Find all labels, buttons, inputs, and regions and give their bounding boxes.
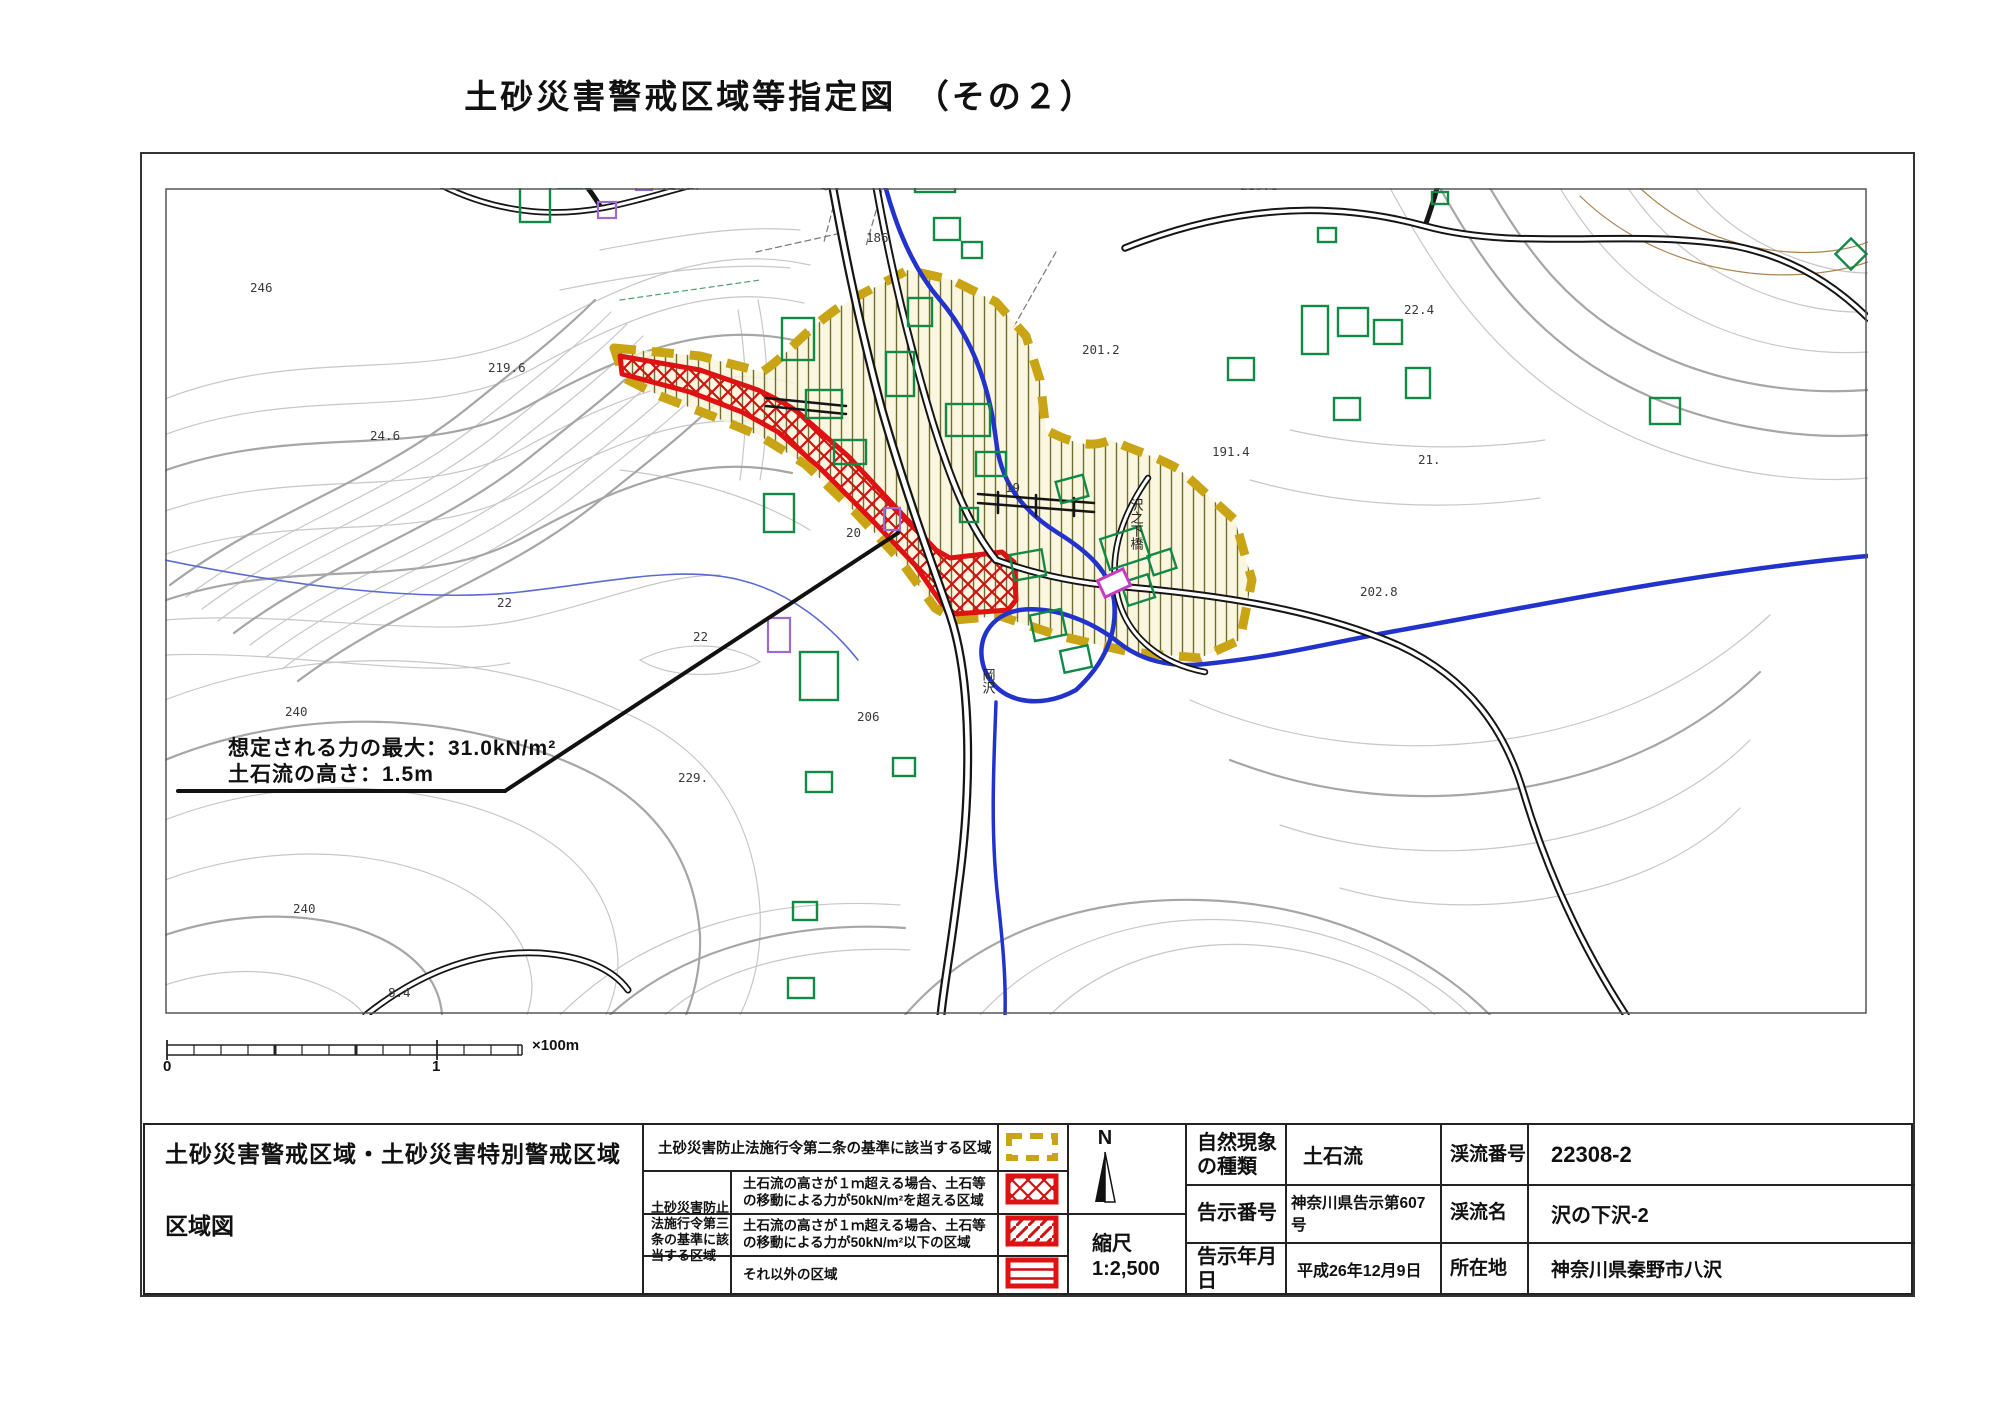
map-elevation-label: 8.4 bbox=[388, 985, 411, 1000]
map-elevation-label: 206 bbox=[857, 709, 880, 724]
info-label-location: 所在地 bbox=[1442, 1242, 1527, 1295]
annotation-flow-height: 土石流の高さ：1.5m bbox=[228, 762, 556, 788]
legend-article2-label: 土砂災害防止法施行令第二条の基準に該当する区域 bbox=[650, 1125, 995, 1170]
scale-zero-label: 0 bbox=[163, 1058, 171, 1075]
legend-row3-label: それ以外の区域 bbox=[737, 1255, 995, 1293]
info-value-notice-date: 平成26年12月9日 bbox=[1287, 1242, 1440, 1295]
map-elevation-label: 20 bbox=[846, 525, 861, 540]
north-label: N bbox=[1025, 1127, 1185, 1150]
annotation-max-force: 想定される力の最大：31.0kN/m² bbox=[228, 736, 556, 762]
scale-unit-label: ×100m bbox=[532, 1037, 579, 1054]
map-elevation-label: 19 bbox=[1005, 480, 1020, 495]
map-elevation-label: 229. bbox=[678, 770, 708, 785]
info-label-notice-number: 告示番号 bbox=[1187, 1184, 1285, 1242]
annotation-callout: 想定される力の最大：31.0kN/m² 土石流の高さ：1.5m bbox=[228, 736, 556, 788]
map-elevation-label: 191.4 bbox=[1212, 444, 1250, 459]
hazard-map-page: 土砂災害警戒区域等指定図 （その２） bbox=[0, 0, 2000, 1414]
map-elevation-label: 219.6 bbox=[488, 360, 526, 375]
topographic-map: 210.4186219.124622.4201.2219.624.6191.42… bbox=[165, 188, 1868, 1015]
grid-line bbox=[642, 1125, 644, 1293]
info-value-stream-number: 22308-2 bbox=[1529, 1125, 1913, 1184]
info-label-stream-number: 渓流番号 bbox=[1442, 1125, 1527, 1184]
scale-cell: 縮尺 1:2,500 bbox=[1075, 1213, 1185, 1297]
info-label-stream-name: 渓流名 bbox=[1442, 1184, 1527, 1242]
doc-title-line1: 土砂災害警戒区域・土砂災害特別警戒区域 bbox=[165, 1135, 635, 1169]
scale-one-label: 1 bbox=[432, 1058, 440, 1075]
map-elevation-label: 24.6 bbox=[370, 428, 400, 443]
info-value-location: 神奈川県秦野市八沢 bbox=[1529, 1242, 1913, 1295]
grid-line bbox=[730, 1170, 732, 1293]
map-elevation-label: 22.4 bbox=[1404, 302, 1434, 317]
legend-info-table: 土砂災害警戒区域・土砂災害特別警戒区域 区域図 土砂災害防止法施行令第二条の基準… bbox=[143, 1123, 1913, 1295]
grid-line bbox=[997, 1125, 999, 1293]
doc-title-line2: 区域図 bbox=[165, 1207, 635, 1241]
north-arrow-icon bbox=[1090, 1150, 1120, 1204]
map-elevation-label: 202.8 bbox=[1360, 584, 1398, 599]
map-elevation-label: 22 bbox=[693, 629, 708, 644]
map-place-label: 沢之下橋 bbox=[1129, 498, 1144, 551]
map-elevation-label: 186 bbox=[866, 230, 889, 245]
special-area-diagonal-swatch bbox=[1004, 1214, 1060, 1248]
info-label-phenomenon: 自然現象の種類 bbox=[1187, 1125, 1285, 1184]
map-elevation-label: 201.2 bbox=[1082, 342, 1120, 357]
map-elevation-label: 22 bbox=[497, 595, 512, 610]
map-elevation-label: 240 bbox=[293, 901, 316, 916]
scale-bar: 0 1 ×100m bbox=[160, 1036, 620, 1086]
info-value-stream-name: 沢の下沢-2 bbox=[1529, 1184, 1913, 1242]
map-place-label: 岡沢 bbox=[981, 668, 996, 694]
info-value-phenomenon: 土石流 bbox=[1287, 1125, 1440, 1184]
legend-article3-label: 土砂災害防止法施行令第三条の基準に該当する区域 bbox=[645, 1170, 729, 1293]
legend-row2-label: 土石流の高さが１ｍ超える場合、土石等の移動による力が50kN/m²以下の区域 bbox=[737, 1213, 995, 1255]
compass-cell: N bbox=[1025, 1125, 1185, 1213]
doc-title-cell: 土砂災害警戒区域・土砂災害特別警戒区域 区域図 bbox=[165, 1135, 635, 1285]
special-area-horizontal-swatch bbox=[1004, 1256, 1060, 1290]
info-value-notice-number: 神奈川県告示第607号 bbox=[1287, 1184, 1440, 1242]
scale-value: 1:2,500 bbox=[1092, 1258, 1185, 1281]
scale-label: 縮尺 bbox=[1092, 1227, 1185, 1256]
map-elevation-label: 240 bbox=[285, 704, 308, 719]
legend-row1-label: 土石流の高さが１ｍ超える場合、土石等の移動による力が50kN/m²を超える区域 bbox=[737, 1170, 995, 1213]
page-title: 土砂災害警戒区域等指定図 （その２） bbox=[380, 70, 1180, 118]
map-elevation-label: 21. bbox=[1418, 452, 1441, 467]
map-elevation-label: 246 bbox=[250, 280, 273, 295]
info-label-notice-date: 告示年月日 bbox=[1187, 1242, 1285, 1295]
